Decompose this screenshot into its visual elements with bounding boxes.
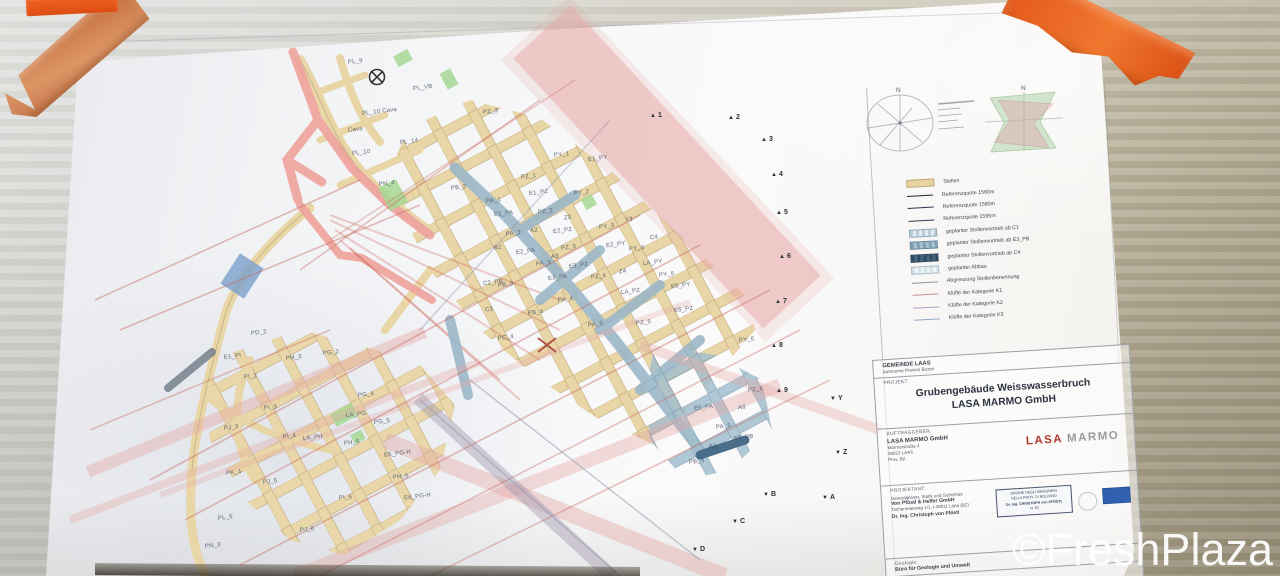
map-zone-label: PB_9	[689, 458, 705, 466]
map-zone-label: E5_PZ	[674, 306, 694, 314]
map-zone-label: PB_4	[528, 309, 544, 317]
map-zone-label: E1_PY	[588, 155, 608, 163]
map-zone-label: PG_5	[374, 418, 391, 426]
map-zone-label: E5_PY	[671, 282, 691, 290]
map-zone-label: E1_PZ	[529, 189, 549, 197]
map-zone-label: E2_PZ	[553, 227, 573, 235]
legend-label: Klüfte der Kategorie K1	[947, 288, 1002, 297]
map-zone-label: A8	[738, 405, 746, 412]
marker-triangle-icon: ▲	[779, 254, 785, 260]
legend-label: geplanter Stollenvortrieb ab C1	[946, 225, 1019, 235]
legend-label: geplanter Abbau	[948, 264, 987, 272]
map-zone-label: PA_5	[588, 321, 604, 329]
marker-triangle-icon: ▼	[822, 495, 828, 501]
map-zone-label: PY_1	[554, 151, 570, 159]
marker-label: 3	[769, 136, 773, 143]
marker-triangle-icon: ▲	[776, 388, 782, 394]
marker-label: 8	[779, 342, 783, 349]
legend-swatch	[914, 318, 940, 320]
map-zone-label: PB_2	[451, 184, 467, 192]
map-zone-label: E2_PA	[516, 248, 536, 256]
map-zone-label: PI_2	[244, 373, 258, 381]
marker-triangle-icon: ▲	[775, 299, 781, 305]
map-zone-label: LA_PY	[643, 259, 663, 267]
map-zone-label: PL_VB	[413, 84, 433, 92]
marker-label: 7	[783, 298, 787, 305]
marker-triangle-icon: ▼	[763, 492, 769, 498]
map-zone-label: E5_PA	[694, 404, 714, 412]
map-zone-label: PA_9	[716, 423, 732, 431]
map-zone-label: PA_1	[486, 197, 502, 205]
legend-swatch	[913, 294, 939, 296]
legend-label: geplanter Stollenvortrieb ab C4	[947, 249, 1020, 259]
map-zone-label: PZ_4	[591, 273, 607, 281]
map-zone-label: Y3	[625, 217, 633, 224]
legend-swatch	[908, 219, 934, 221]
map-zone-label: PA_3	[536, 260, 552, 268]
engineer-stamp: ORDINE DEGLI INGEGNERI DELLA PROV. DI BO…	[995, 485, 1073, 517]
map-zone-label: PY_4	[629, 245, 645, 253]
legend-label: Abgrenzung Stollenbenennung	[947, 274, 1020, 284]
map-zone-label: PH_5	[344, 439, 360, 447]
map-zone-label: PD_2	[251, 329, 267, 337]
map-zone-label: A3	[551, 254, 559, 261]
legend-swatch	[908, 207, 934, 209]
marker-triangle-icon: ▲	[761, 137, 767, 143]
marker-triangle-icon: ▼	[835, 450, 841, 456]
legend-label: Referenzquote 1595m	[943, 213, 996, 222]
map-zone-label: E1_PI	[224, 353, 242, 361]
marker-triangle-icon: ▲	[728, 115, 734, 121]
map-zone-label: PZ_6	[748, 386, 764, 394]
map-zone-label: PL_5	[218, 514, 233, 522]
survey-marker: ▲2	[728, 114, 740, 121]
legend-swatch	[910, 253, 938, 263]
round-seal	[1078, 491, 1098, 511]
marker-label: C	[740, 518, 745, 525]
survey-marker: ▼Y	[830, 395, 843, 402]
legend-label: Referenzquote 1580m	[943, 201, 996, 210]
photo-of-mine-map: N N PL_9PL_VBPL_10 CavaCavaPL_14PL_10PN_…	[0, 0, 1280, 576]
map-zone-label: PN_3	[205, 542, 221, 550]
map-zone-label: PB_3	[498, 281, 514, 289]
map-legend: Stollen Referenzquote 1560m Referenzquot…	[906, 171, 1034, 326]
marker-label: 5	[784, 209, 788, 216]
marker-triangle-icon: ▲	[650, 113, 656, 119]
marker-label: 1	[658, 112, 662, 119]
map-zone-label: E5_PG-H	[384, 449, 412, 458]
map-zone-label: PY_5	[659, 271, 675, 279]
survey-marker: ▲7	[775, 298, 787, 305]
marker-triangle-icon: ▲	[771, 172, 777, 178]
map-zone-label: Z4	[619, 269, 627, 276]
map-zone-label: PJ_3	[224, 424, 239, 432]
map-zone-label: Z3	[564, 215, 572, 222]
map-zone-label: PL_14	[400, 138, 419, 146]
marker-label: Z	[843, 449, 847, 456]
lasa-marmo-logo: LASAMARMO	[1025, 429, 1119, 447]
legend-label: Klüfte der Kategorie K3	[949, 312, 1004, 321]
legend-swatch	[906, 179, 934, 189]
marker-label: B	[771, 491, 776, 498]
blue-signature-stamp	[1103, 487, 1131, 504]
logo-lasa-text: LASA	[1025, 433, 1063, 447]
survey-marker: ▲1	[650, 112, 662, 119]
map-zone-label: B8	[709, 444, 717, 451]
survey-marker: ▼Z	[835, 449, 847, 456]
map-zone-label: E6_PG-H	[404, 492, 432, 501]
map-zone-label: PZ_1	[521, 173, 537, 181]
legend-swatch	[909, 228, 937, 238]
marker-triangle-icon: ▼	[692, 547, 698, 553]
legend-label: Referenzquote 1560m	[942, 189, 995, 198]
survey-marker: ▲3	[761, 136, 773, 143]
marker-triangle-icon: ▲	[776, 210, 782, 216]
map-zone-label: E1_PA	[494, 210, 514, 218]
marker-label: A	[830, 494, 835, 501]
map-zone-label: PK_4	[226, 469, 242, 477]
map-zone-label: PG_4	[358, 391, 375, 399]
map-zone-label: B2	[494, 245, 502, 252]
map-zone-label: PH_3	[286, 354, 302, 362]
legend-swatch	[911, 265, 939, 275]
marker-label: 2	[736, 114, 740, 121]
legend-label: Stollen	[943, 178, 960, 185]
survey-marker: ▼B	[763, 491, 776, 498]
map-zone-label: PZ_5	[636, 319, 652, 327]
legend-swatch	[907, 195, 933, 197]
map-zone-label: PC_4	[498, 334, 514, 342]
survey-marker: ▲8	[771, 342, 783, 349]
map-zone-label: PJ_5	[263, 478, 278, 486]
map-zone-label: C4	[650, 235, 659, 242]
map-zone-label: PN_4	[379, 180, 395, 188]
marker-label: 6	[787, 253, 791, 260]
marker-label: D	[700, 546, 705, 553]
map-zone-label: PA_4	[558, 296, 574, 304]
legend-label: Klüfte der Kategorie K2	[948, 300, 1003, 309]
legend-swatch	[910, 240, 938, 250]
survey-marker: ▲5	[776, 209, 788, 216]
map-zone-label: PY_3	[599, 223, 615, 231]
map-zone-label: E2_PY	[606, 241, 626, 249]
map-zone-label: PJ_6	[300, 526, 315, 534]
survey-marker: ▲9	[776, 387, 788, 394]
map-zone-label: PZ_3	[483, 108, 499, 116]
map-zone-label: PY_6	[739, 336, 755, 344]
map-zone-label: LA_PG	[346, 411, 367, 419]
marker-triangle-icon: ▼	[830, 396, 836, 402]
map-zone-label: A2	[530, 228, 538, 235]
map-zone-label: Cava	[348, 126, 363, 134]
survey-marker: ▲4	[771, 171, 783, 178]
map-zone-label: PH_6	[393, 473, 409, 481]
survey-marker: ▲6	[779, 253, 791, 260]
legend-swatch	[913, 306, 939, 308]
map-zone-label: PI_6	[339, 494, 353, 502]
map-zone-label: PA_2	[506, 230, 522, 238]
logo-marmo-text: MARMO	[1067, 429, 1120, 444]
map-zone-label: PL_9	[348, 58, 363, 66]
map-zone-label: PZ_2	[538, 208, 554, 216]
map-zone-label: PI_4	[283, 433, 297, 441]
marker-label: 9	[784, 387, 788, 394]
map-zone-label: PZ_3	[561, 244, 577, 252]
map-zone-label: PY_2	[574, 189, 590, 197]
map-zone-label: E3_PA	[548, 274, 568, 282]
legend-swatch	[912, 281, 938, 283]
map-zone-label: PL_10 Cava	[362, 107, 398, 117]
marker-triangle-icon: ▼	[732, 519, 738, 525]
marker-label: Y	[838, 395, 843, 402]
map-zone-label: PL_10	[352, 149, 371, 157]
survey-marker: ▼A	[822, 494, 835, 501]
map-zone-label: C3	[485, 307, 494, 314]
marker-label: 4	[779, 171, 783, 178]
survey-marker: ▼C	[732, 518, 745, 525]
map-zone-label: PI_3	[264, 404, 278, 412]
marker-triangle-icon: ▲	[771, 343, 777, 349]
map-zone-label: LA_PH	[303, 434, 324, 442]
map-zone-label: PG_2	[323, 349, 340, 357]
survey-marker: ▼D	[692, 546, 705, 553]
map-zone-label: E5_PB	[734, 434, 754, 442]
freshplaza-watermark: ©FreshPlaza	[1012, 524, 1273, 576]
map-zone-label: E3_PZ	[569, 262, 589, 270]
map-zone-label: LA_PZ	[621, 288, 641, 296]
